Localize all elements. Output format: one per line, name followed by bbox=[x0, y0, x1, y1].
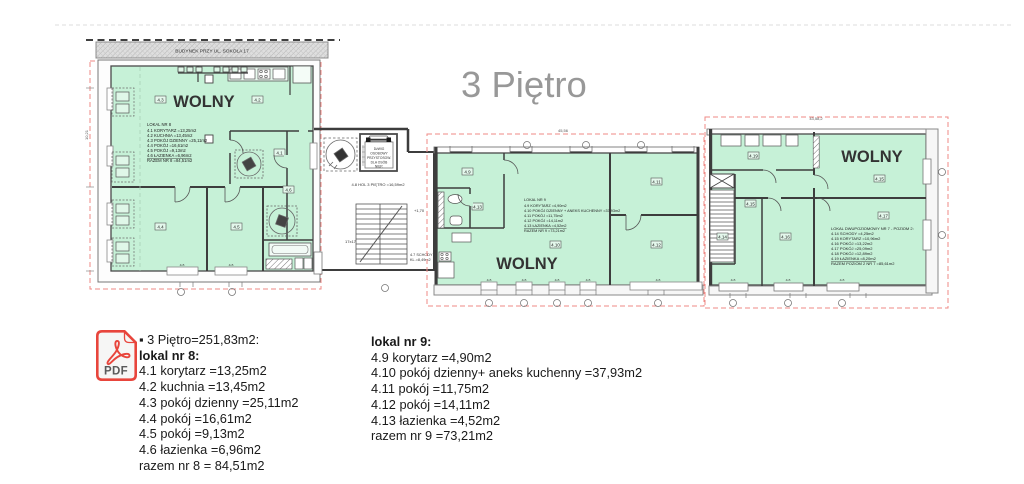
svg-text:4.11: 4.11 bbox=[652, 180, 661, 185]
svg-text:BUDYNEK PRZY UL. SOKOŁA 17: BUDYNEK PRZY UL. SOKOŁA 17 bbox=[175, 49, 249, 55]
svg-text:DźWIG: DźWIG bbox=[374, 147, 385, 151]
svg-text:4.16: 4.16 bbox=[781, 235, 790, 240]
svg-text:4x5: 4x5 bbox=[229, 263, 234, 267]
svg-text:KL.=8,49m2: KL.=8,49m2 bbox=[410, 258, 431, 262]
svg-text:4.13: 4.13 bbox=[473, 205, 482, 210]
svg-text:4.11 POKÓJ =11,75m2: 4.11 POKÓJ =11,75m2 bbox=[524, 213, 563, 218]
svg-text:4.3: 4.3 bbox=[157, 98, 164, 103]
svg-text:10,21: 10,21 bbox=[84, 129, 89, 140]
svg-text:PDF: PDF bbox=[104, 366, 128, 378]
svg-text:4.8 HOL 3 PIĘTRO =16,59m2: 4.8 HOL 3 PIĘTRO =16,59m2 bbox=[351, 182, 405, 187]
svg-text:PRZYSTOSOW.: PRZYSTOSOW. bbox=[367, 156, 391, 160]
svg-text:4.19: 4.19 bbox=[749, 154, 758, 159]
svg-text:WOLNY: WOLNY bbox=[841, 148, 902, 166]
svg-text:4.12: 4.12 bbox=[652, 243, 661, 248]
svg-text:4.2: 4.2 bbox=[254, 98, 261, 103]
svg-text:4.5: 4.5 bbox=[233, 225, 240, 230]
svg-text:4.15: 4.15 bbox=[875, 177, 884, 182]
svg-text:4x5: 4x5 bbox=[786, 278, 791, 282]
svg-text:4.17: 4.17 bbox=[879, 214, 888, 219]
svg-text:4.10 POKÓJ DZIENNY + ANEKS KUC: 4.10 POKÓJ DZIENNY + ANEKS KUCHENNY =37,… bbox=[524, 208, 620, 213]
svg-text:LOKAL NR 9: LOKAL NR 9 bbox=[524, 198, 546, 202]
svg-text:43,58,2: 43,58,2 bbox=[809, 116, 823, 121]
svg-text:RAZEM NR 8 =84,51m2: RAZEM NR 8 =84,51m2 bbox=[147, 158, 193, 163]
svg-text:OSOBOWY: OSOBOWY bbox=[370, 152, 388, 156]
svg-text:4.9 KORYTARZ =4,90m2: 4.9 KORYTARZ =4,90m2 bbox=[524, 204, 567, 208]
svg-text:NIEP.: NIEP. bbox=[375, 165, 383, 169]
svg-text:WOLNY: WOLNY bbox=[173, 93, 234, 111]
svg-text:4.15: 4.15 bbox=[746, 202, 755, 207]
svg-text:4.1: 4.1 bbox=[276, 151, 283, 156]
svg-text:4.4: 4.4 bbox=[157, 225, 164, 230]
svg-text:4.14: 4.14 bbox=[718, 235, 727, 240]
svg-text:4x5: 4x5 bbox=[555, 278, 560, 282]
svg-text:45,56: 45,56 bbox=[558, 128, 569, 133]
svg-text:RAZEM POZIOM 2 NR 7 =85,61m2: RAZEM POZIOM 2 NR 7 =85,61m2 bbox=[831, 261, 895, 266]
svg-text:4.10: 4.10 bbox=[551, 243, 560, 248]
svg-text:4x5: 4x5 bbox=[586, 278, 591, 282]
svg-text:4.12 POKÓJ =14,11m2: 4.12 POKÓJ =14,11m2 bbox=[524, 218, 563, 223]
svg-text:4.6: 4.6 bbox=[285, 188, 292, 193]
svg-text:4x5: 4x5 bbox=[180, 263, 185, 267]
svg-text:+1,70: +1,70 bbox=[414, 208, 425, 213]
svg-text:4.7 SCHODY: 4.7 SCHODY bbox=[410, 253, 433, 257]
svg-text:17x17: 17x17 bbox=[345, 239, 357, 244]
svg-text:4x5: 4x5 bbox=[487, 278, 492, 282]
svg-text:4x5: 4x5 bbox=[731, 278, 736, 282]
svg-text:4.9: 4.9 bbox=[464, 170, 471, 175]
svg-text:LOKAL NR 8: LOKAL NR 8 bbox=[147, 122, 172, 127]
svg-text:RAZEM NR 9 =73,21m2: RAZEM NR 9 =73,21m2 bbox=[524, 229, 565, 233]
svg-text:4x5: 4x5 bbox=[656, 278, 661, 282]
svg-text:4x5: 4x5 bbox=[522, 278, 527, 282]
svg-text:4.13 ŁAZIENKA =4,52m2: 4.13 ŁAZIENKA =4,52m2 bbox=[524, 224, 567, 228]
svg-text:4x5: 4x5 bbox=[840, 278, 845, 282]
svg-text:WOLNY: WOLNY bbox=[496, 255, 557, 273]
